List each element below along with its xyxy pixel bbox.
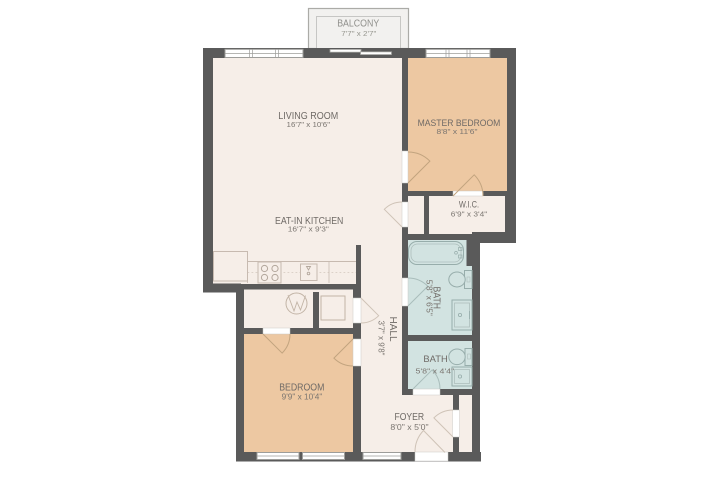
svg-text:BALCONY: BALCONY: [337, 19, 379, 30]
svg-text:3'7" x 9'8": 3'7" x 9'8": [377, 321, 386, 356]
svg-text:HALL: HALL: [387, 317, 399, 342]
svg-text:8'8" x 11'6": 8'8" x 11'6": [437, 127, 478, 136]
svg-text:16'7" x 10'6": 16'7" x 10'6": [287, 120, 331, 129]
svg-text:16'7" x 9'3": 16'7" x 9'3": [288, 225, 329, 234]
svg-text:8'0" x 5'0": 8'0" x 5'0": [390, 423, 428, 432]
svg-text:5'8" x 4'4": 5'8" x 4'4": [416, 367, 455, 376]
svg-text:9'9" x 10'4": 9'9" x 10'4": [282, 392, 323, 401]
svg-text:5'8" x 6'5": 5'8" x 6'5": [425, 280, 434, 316]
svg-text:6'9" x 3'4": 6'9" x 3'4": [451, 212, 488, 219]
svg-text:FOYER: FOYER: [394, 412, 424, 423]
svg-text:7'7" x 2'7": 7'7" x 2'7": [341, 29, 376, 38]
svg-text:BATH: BATH: [423, 354, 447, 364]
svg-text:W.I.C.: W.I.C.: [459, 200, 479, 210]
